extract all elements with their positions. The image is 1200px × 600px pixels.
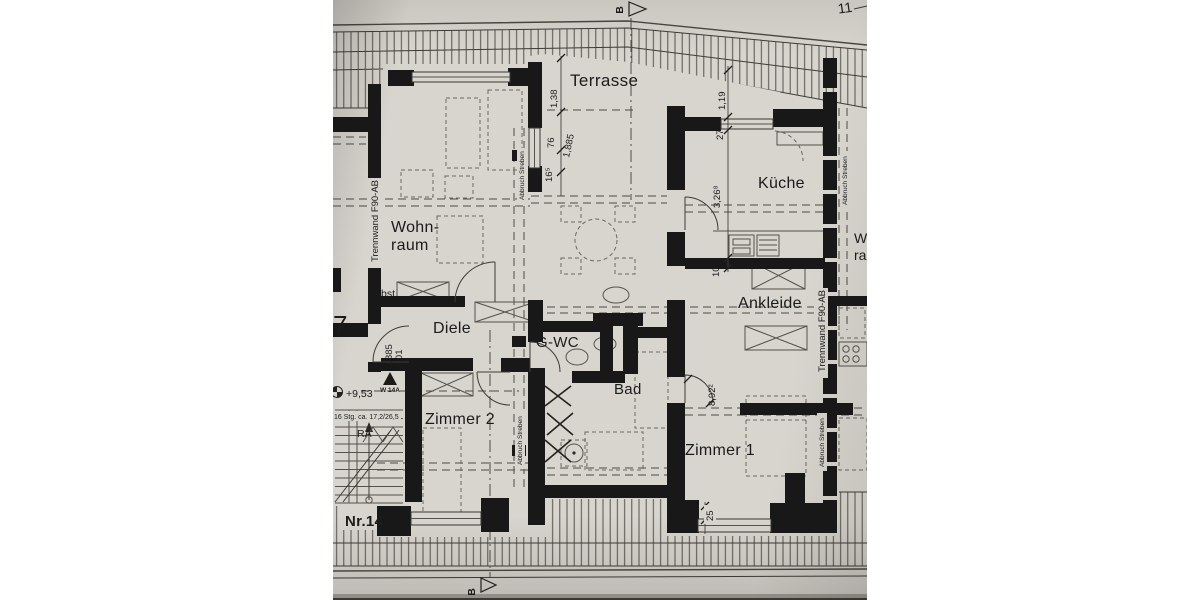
note-abbruch-streben-2: Abbruch Streben [517, 416, 524, 465]
page-number: 11 [837, 0, 854, 17]
note-abbruch-streben-3: Abbruch Streben [842, 156, 849, 205]
note-abbruch-streben-1: Abbruch Streben [519, 151, 526, 200]
dim-76: 76 [546, 137, 557, 148]
dim-25: 25 [705, 510, 716, 521]
section-letter-top: B [614, 6, 626, 14]
dim-892: 8,92² [707, 384, 718, 406]
wall-tag-label: W 14A [380, 387, 400, 394]
floor-plan-sheet: Terrasse Küche Wohn- raum Ankleide Diele… [333, 0, 867, 600]
room-label-zimmer1: Zimmer 1 [685, 442, 755, 459]
dim-27: 27 [715, 129, 726, 140]
room-label-terrasse: Terrasse [570, 71, 638, 90]
room-label-diele: Diele [433, 320, 471, 337]
stairs-ra-label: RA [357, 428, 372, 440]
neighbor-unit-digit: 7 [333, 310, 347, 340]
room-label-bad: Bad [614, 381, 642, 398]
note-trennwand-right: Trennwand F90-AB [817, 290, 828, 372]
stairs-note: 16 Stg. ca. 17,2/26,5 [334, 414, 399, 421]
neighbor-room-label-line2: ra [854, 247, 867, 263]
dim-door-height: 2,01 [394, 350, 405, 369]
note-abbruch-streben-4: Abbruch Streben [819, 418, 826, 467]
floor-plan-drawing: Terrasse Küche Wohn- raum Ankleide Diele… [333, 0, 867, 600]
level-annotation: +9,53 [346, 388, 373, 400]
section-marker-bottom: B [466, 578, 496, 596]
neighbor-stove [839, 342, 867, 366]
dim-kueche-width: 3,26⁸ [712, 186, 723, 209]
dim-terrasse-depth: 1,38 [549, 90, 560, 109]
room-label-zimmer2: Zimmer 2 [425, 411, 495, 428]
room-label-wohnraum-line1: Wohn- [391, 219, 439, 236]
section-flag-top-icon [629, 2, 646, 16]
photo-of-floor-plan: Terrasse Küche Wohn- raum Ankleide Diele… [0, 0, 1200, 600]
room-label-wohnraum-line2: raum [391, 237, 429, 254]
room-label-kueche: Küche [758, 175, 805, 192]
room-label-ankleide: Ankleide [738, 295, 802, 312]
section-marker-top: B [614, 2, 646, 16]
dim-165: 16⁵ [544, 167, 555, 182]
unit-number-label: Nr.14 [345, 513, 384, 530]
dim-terrasse-right: 1,19 [717, 92, 728, 111]
section-flag-bottom-icon [481, 578, 496, 592]
level-marker [333, 387, 343, 398]
dim-10: 10 [711, 266, 722, 277]
note-trennwand-left: Trennwand F90-AB [370, 180, 381, 262]
neighbor-room-label-line1: W [854, 230, 867, 246]
room-label-abstellraum: Abst. [374, 288, 398, 300]
section-letter-bottom: B [466, 588, 478, 596]
room-label-gwc: G-WC [536, 334, 579, 351]
